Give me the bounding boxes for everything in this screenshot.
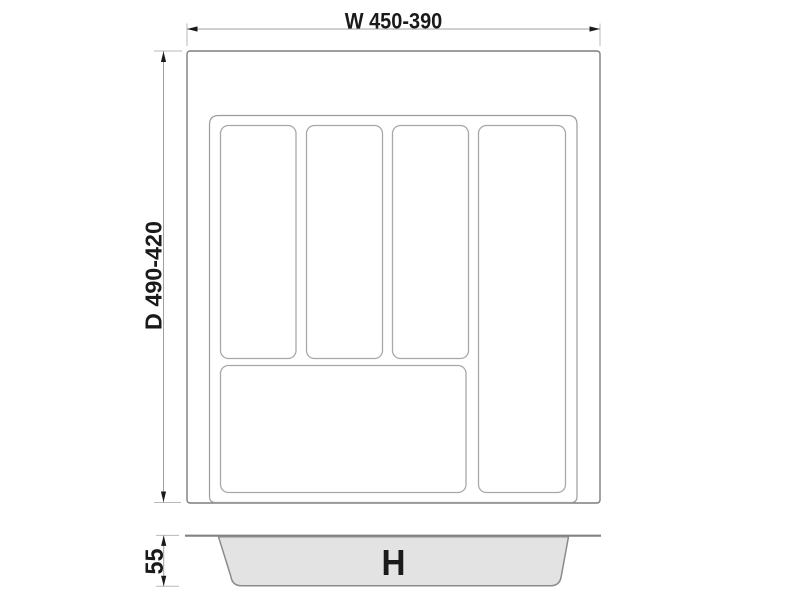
svg-text:55: 55 — [141, 548, 169, 574]
svg-text:D 490-420: D 490-420 — [141, 221, 167, 330]
svg-text:W 450-390: W 450-390 — [345, 9, 443, 34]
svg-text:H: H — [382, 542, 406, 583]
